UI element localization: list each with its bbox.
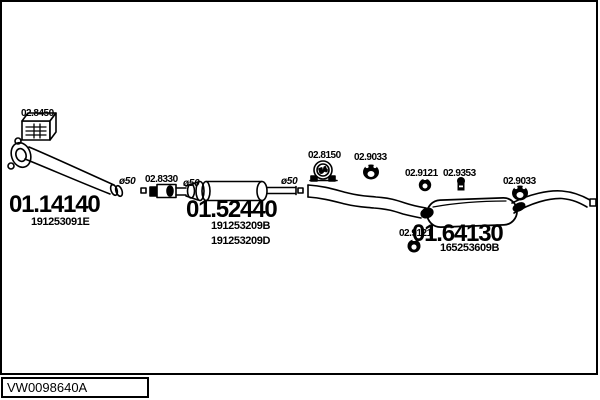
front-clamp-icon	[141, 185, 176, 198]
rear-clamp-icon: 54	[310, 161, 337, 181]
centre-muffler-part-number: 01.52440	[186, 196, 277, 223]
catalog-page: 02.8450 01.14140 191253091E ø50 02.8330	[0, 0, 600, 400]
front-pipe-oem-number: 191253091E	[31, 216, 89, 228]
pipe-diameter-label-3: ø50	[281, 176, 298, 187]
tail-hanger-label: 02.9033	[503, 176, 537, 187]
pipe-diameter-label-1: ø50	[119, 176, 136, 187]
catalog-code-box: VW0098640A	[1, 377, 149, 398]
front-pipe-drawing	[25, 147, 124, 197]
centre-muffler-oem-number-1: 191253209B	[211, 220, 270, 232]
catalog-code: VW0098640A	[7, 380, 87, 395]
front-flange	[8, 138, 34, 170]
centre-hanger-label: 02.9033	[354, 152, 388, 163]
exhaust-system-diagram: 02.8450 01.14140 191253091E ø50 02.8330	[0, 0, 600, 376]
rubber-hanger-icon-1	[363, 165, 379, 180]
rear-muffler-oem-number: 165253609B	[440, 242, 499, 254]
front-clamp-label: 02.8330	[145, 174, 179, 185]
centre-muffler-oem-number-2: 191253209D	[211, 235, 270, 247]
fitting-kit-label: 02.8450	[21, 108, 55, 119]
pipe-diameter-label-2: ø50	[183, 178, 200, 189]
centre-ring-label: 02.9121	[405, 168, 439, 179]
front-pipe-part-number: 01.14140	[9, 191, 100, 218]
rear-pipe-drawing	[298, 185, 434, 219]
rubber-ring-icon-1	[419, 178, 431, 192]
rear-clamp-label: 02.8150	[308, 150, 342, 161]
rubber-mount-icon	[457, 177, 465, 191]
rubber-hanger-icon-2	[512, 186, 528, 201]
